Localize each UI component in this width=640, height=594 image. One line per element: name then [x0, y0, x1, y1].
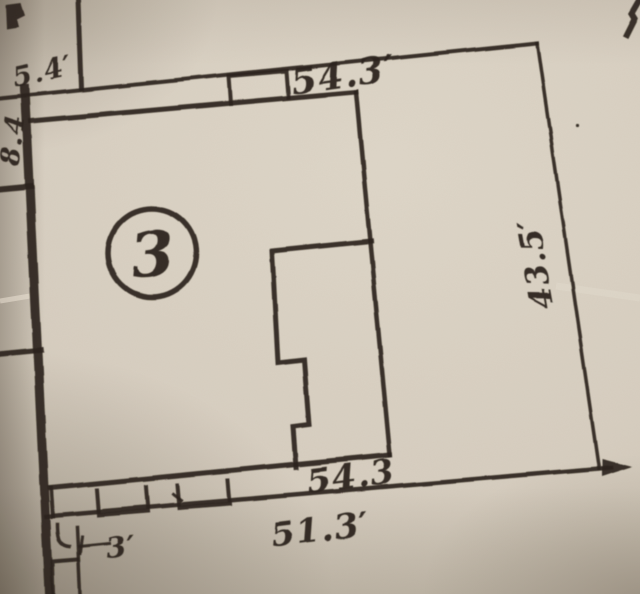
plat-drawing: 3 54.3′ 43.5′ 54.3 51.3′ 5.4′ 8.4 3′	[0, 0, 640, 594]
paper-grain-overlay	[0, 0, 640, 594]
plat-map-photo: 3 54.3′ 43.5′ 54.3 51.3′ 5.4′ 8.4 3′	[0, 0, 640, 594]
